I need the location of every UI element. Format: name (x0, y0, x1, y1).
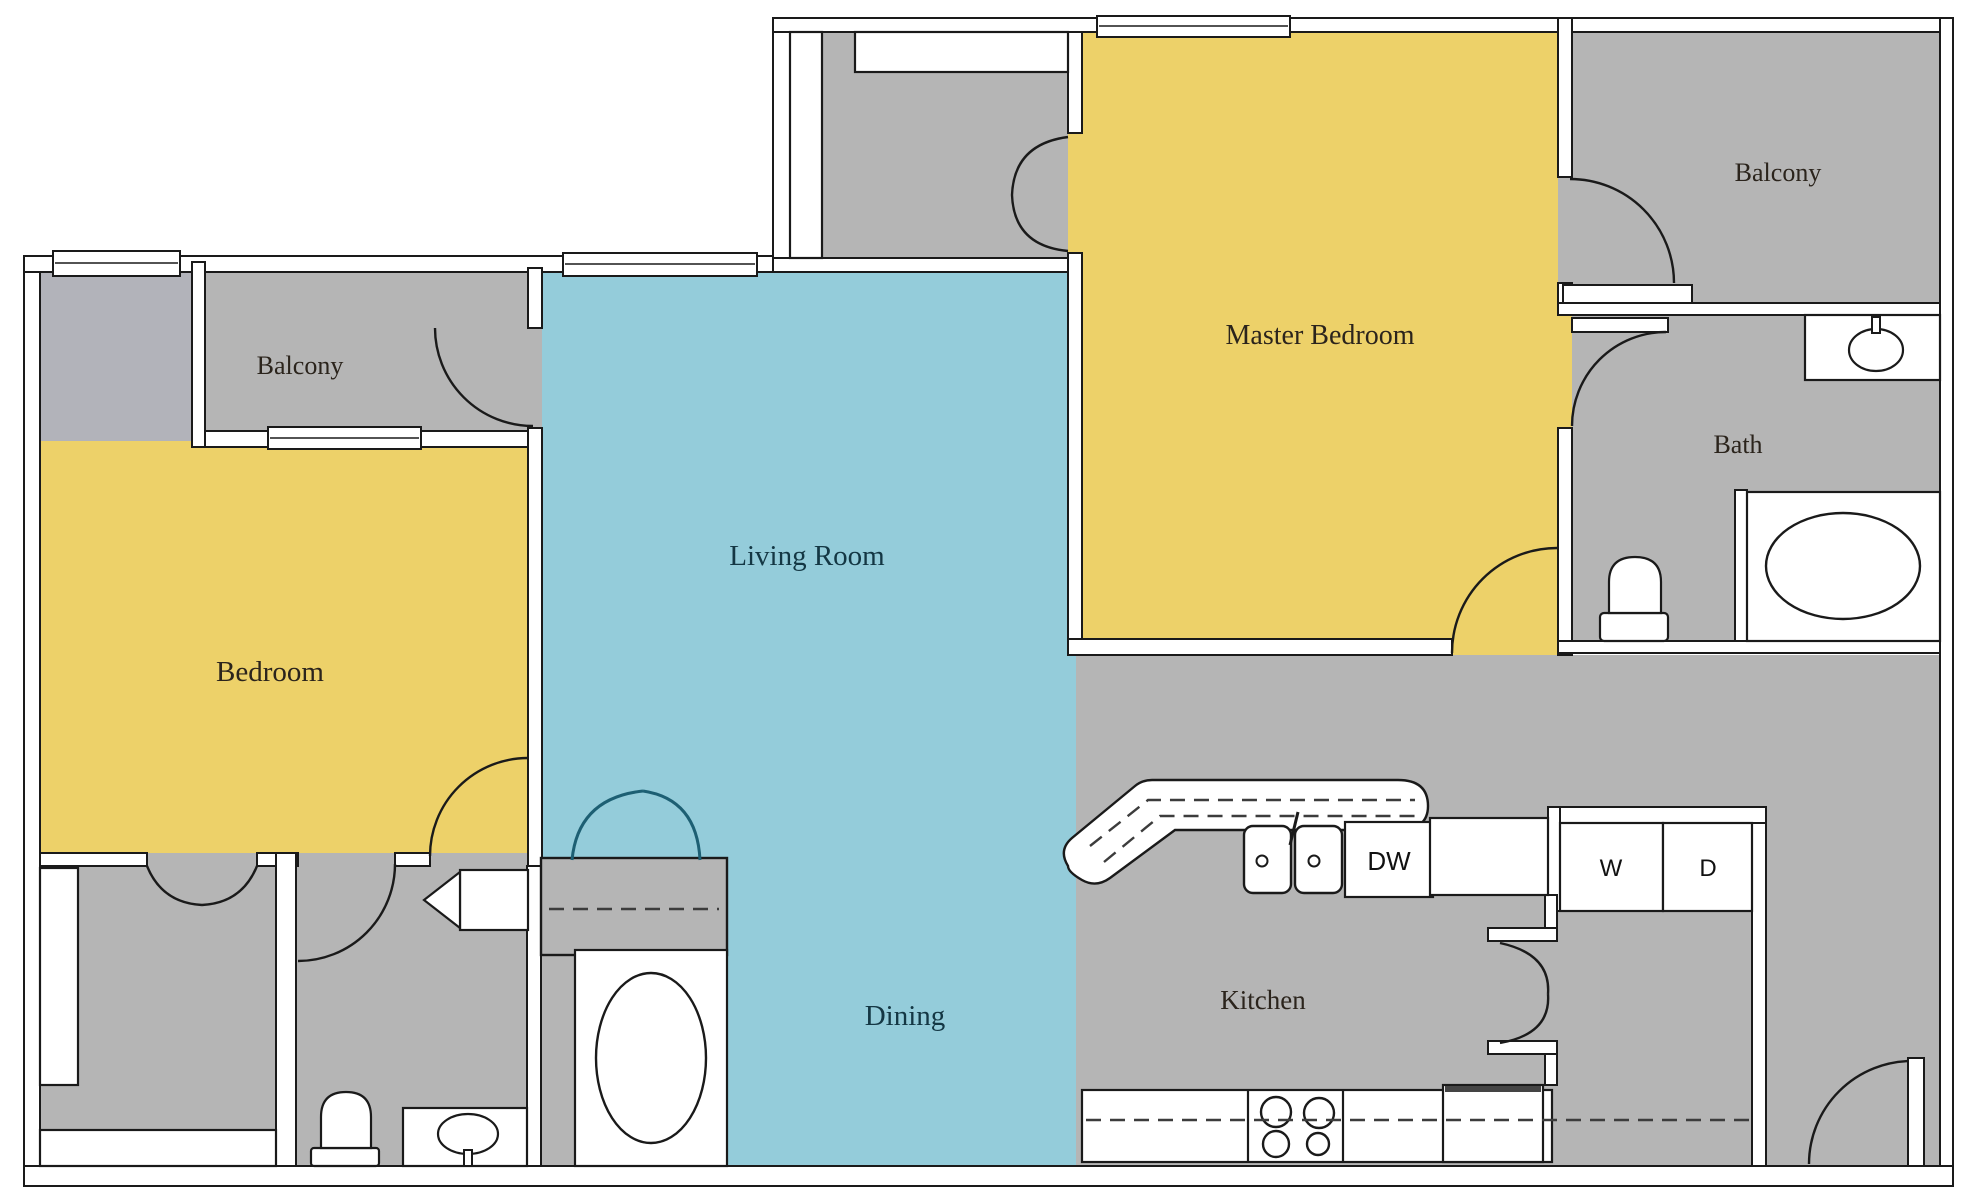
bath-toilet-bowl (1609, 557, 1661, 613)
label-kitchen: Kitchen (1220, 985, 1306, 1015)
walk-in-closet-shelf-bottom (40, 1130, 276, 1166)
second-bath-toilet-tank (311, 1148, 379, 1166)
second-bath-sink-faucet-icon (464, 1150, 472, 1166)
wall-pantry-jamb-top (1488, 928, 1557, 941)
wall-living-master (1068, 253, 1082, 655)
label-washer: W (1600, 855, 1623, 882)
wall-balcony-left-side (192, 262, 205, 447)
label-balcony-right: Balcony (1735, 158, 1822, 187)
bedroom-nook-fill (40, 272, 192, 441)
wall-entry-hall (1752, 807, 1766, 1166)
wall-closet-master-upper (1068, 32, 1082, 133)
wall-living-bedroom (528, 428, 542, 866)
label-dining: Dining (865, 1000, 946, 1032)
master-closet-shelf-top (855, 32, 1068, 72)
label-dishwasher: DW (1367, 846, 1411, 876)
door-panel-entry (1908, 1058, 1924, 1166)
wall-bath-bottom (1558, 641, 1940, 653)
label-bedroom: Bedroom (216, 656, 324, 688)
balcony-left-fill (205, 272, 528, 431)
floor-plan-canvas: Balcony Bedroom Living Room Dining Maste… (0, 0, 1968, 1200)
balcony-right-door-gap (1558, 177, 1572, 283)
wall-balcony-right-bottom (1558, 303, 1940, 315)
master-bedroom-door-gap (1452, 639, 1558, 655)
wall-master-right-lower (1558, 428, 1572, 655)
wall-master-bottom (1068, 639, 1452, 655)
kitchen-counter-right (1430, 818, 1548, 895)
wall-tub-enclosure (1735, 490, 1747, 641)
wall-exterior-left (24, 256, 40, 1186)
sill-balcony-right-door (1563, 285, 1692, 303)
label-balcony-left: Balcony (257, 351, 344, 380)
second-bath-tub-basin (596, 973, 706, 1143)
label-living-room: Living Room (729, 540, 885, 572)
bath-sink-basin (1849, 329, 1903, 371)
dining-closet (541, 858, 727, 955)
walk-in-closet-shelf-left (40, 868, 78, 1085)
label-bath: Bath (1713, 430, 1762, 459)
wall-exterior-step (773, 18, 790, 263)
second-bath-sink-basin (438, 1114, 498, 1154)
wall-pantry-jamb-bottom (1488, 1041, 1557, 1054)
refrigerator-box (1443, 1085, 1543, 1162)
wall-closet-bath2 (276, 853, 296, 1166)
wall-bedroom-bottom-c (395, 853, 430, 866)
wall-exterior-bottom (24, 1166, 1953, 1186)
door-panel-master-bath (1572, 318, 1668, 332)
wall-closet-living (773, 258, 1082, 272)
wall-laundry-top (1548, 807, 1766, 823)
linen-closet (460, 870, 528, 930)
wall-living-balcony-upper (528, 268, 542, 328)
bath-door-gap (1558, 314, 1572, 428)
second-bath-toilet-bowl (321, 1092, 371, 1148)
wall-bedroom-bottom-a (40, 853, 147, 866)
label-master-bedroom: Master Bedroom (1226, 320, 1415, 351)
master-closet-shelf-left (790, 32, 822, 258)
wall-exterior-right (1940, 18, 1953, 1186)
wall-master-right-upper (1558, 18, 1572, 177)
bath-toilet-tank (1600, 613, 1668, 641)
floor-plan: Balcony Bedroom Living Room Dining Maste… (0, 0, 1968, 1200)
closet-door-gap (1068, 133, 1082, 253)
balcony-left-door-gap (528, 328, 542, 428)
tub-alcove-gap (541, 955, 575, 1166)
wall-exterior-top-right (773, 18, 1953, 32)
label-dryer: D (1699, 855, 1716, 882)
bath-tub-basin (1766, 513, 1920, 619)
bath-sink-faucet-icon (1872, 317, 1880, 333)
